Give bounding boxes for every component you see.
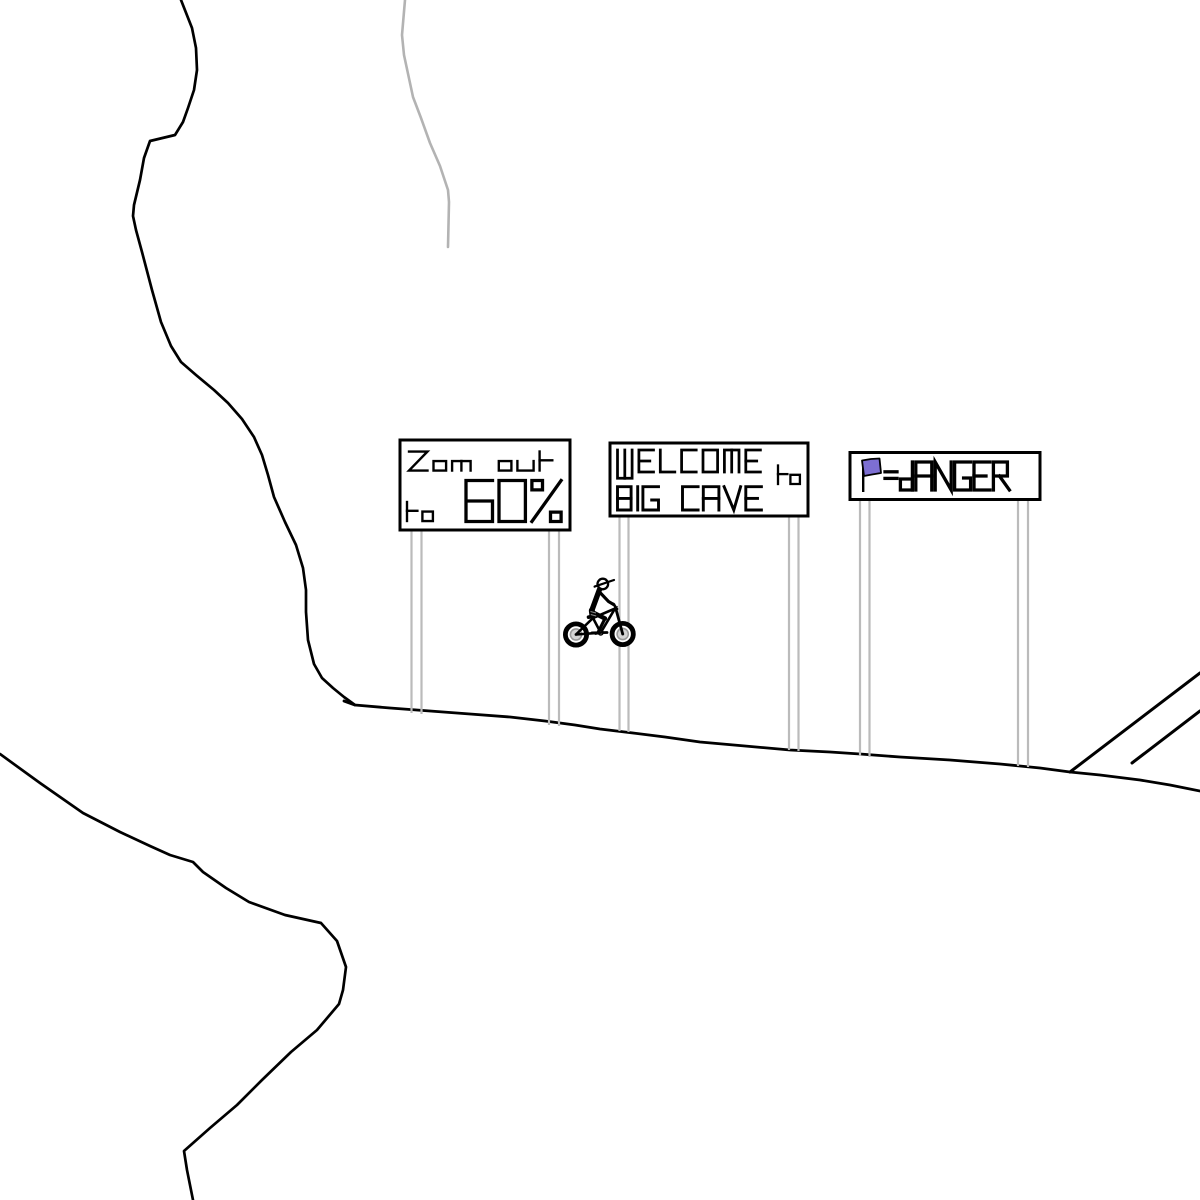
track-drawing[interactable] xyxy=(0,0,1200,1200)
lower-cliff-line xyxy=(0,754,346,1200)
danger-sign xyxy=(850,453,1040,500)
gray-hint-line xyxy=(402,0,449,247)
welcome-sign xyxy=(610,443,808,516)
danger-sign-posts xyxy=(860,498,1028,767)
welcome-sign-posts xyxy=(620,515,799,751)
cliff-line xyxy=(133,0,355,705)
zoom-sign-posts xyxy=(412,529,560,726)
zoom-sign xyxy=(400,440,570,530)
ground-line xyxy=(344,701,1200,791)
game-canvas[interactable] xyxy=(0,0,1200,1200)
ramp-line-upper xyxy=(1070,673,1200,772)
bmx-rider xyxy=(565,579,633,645)
